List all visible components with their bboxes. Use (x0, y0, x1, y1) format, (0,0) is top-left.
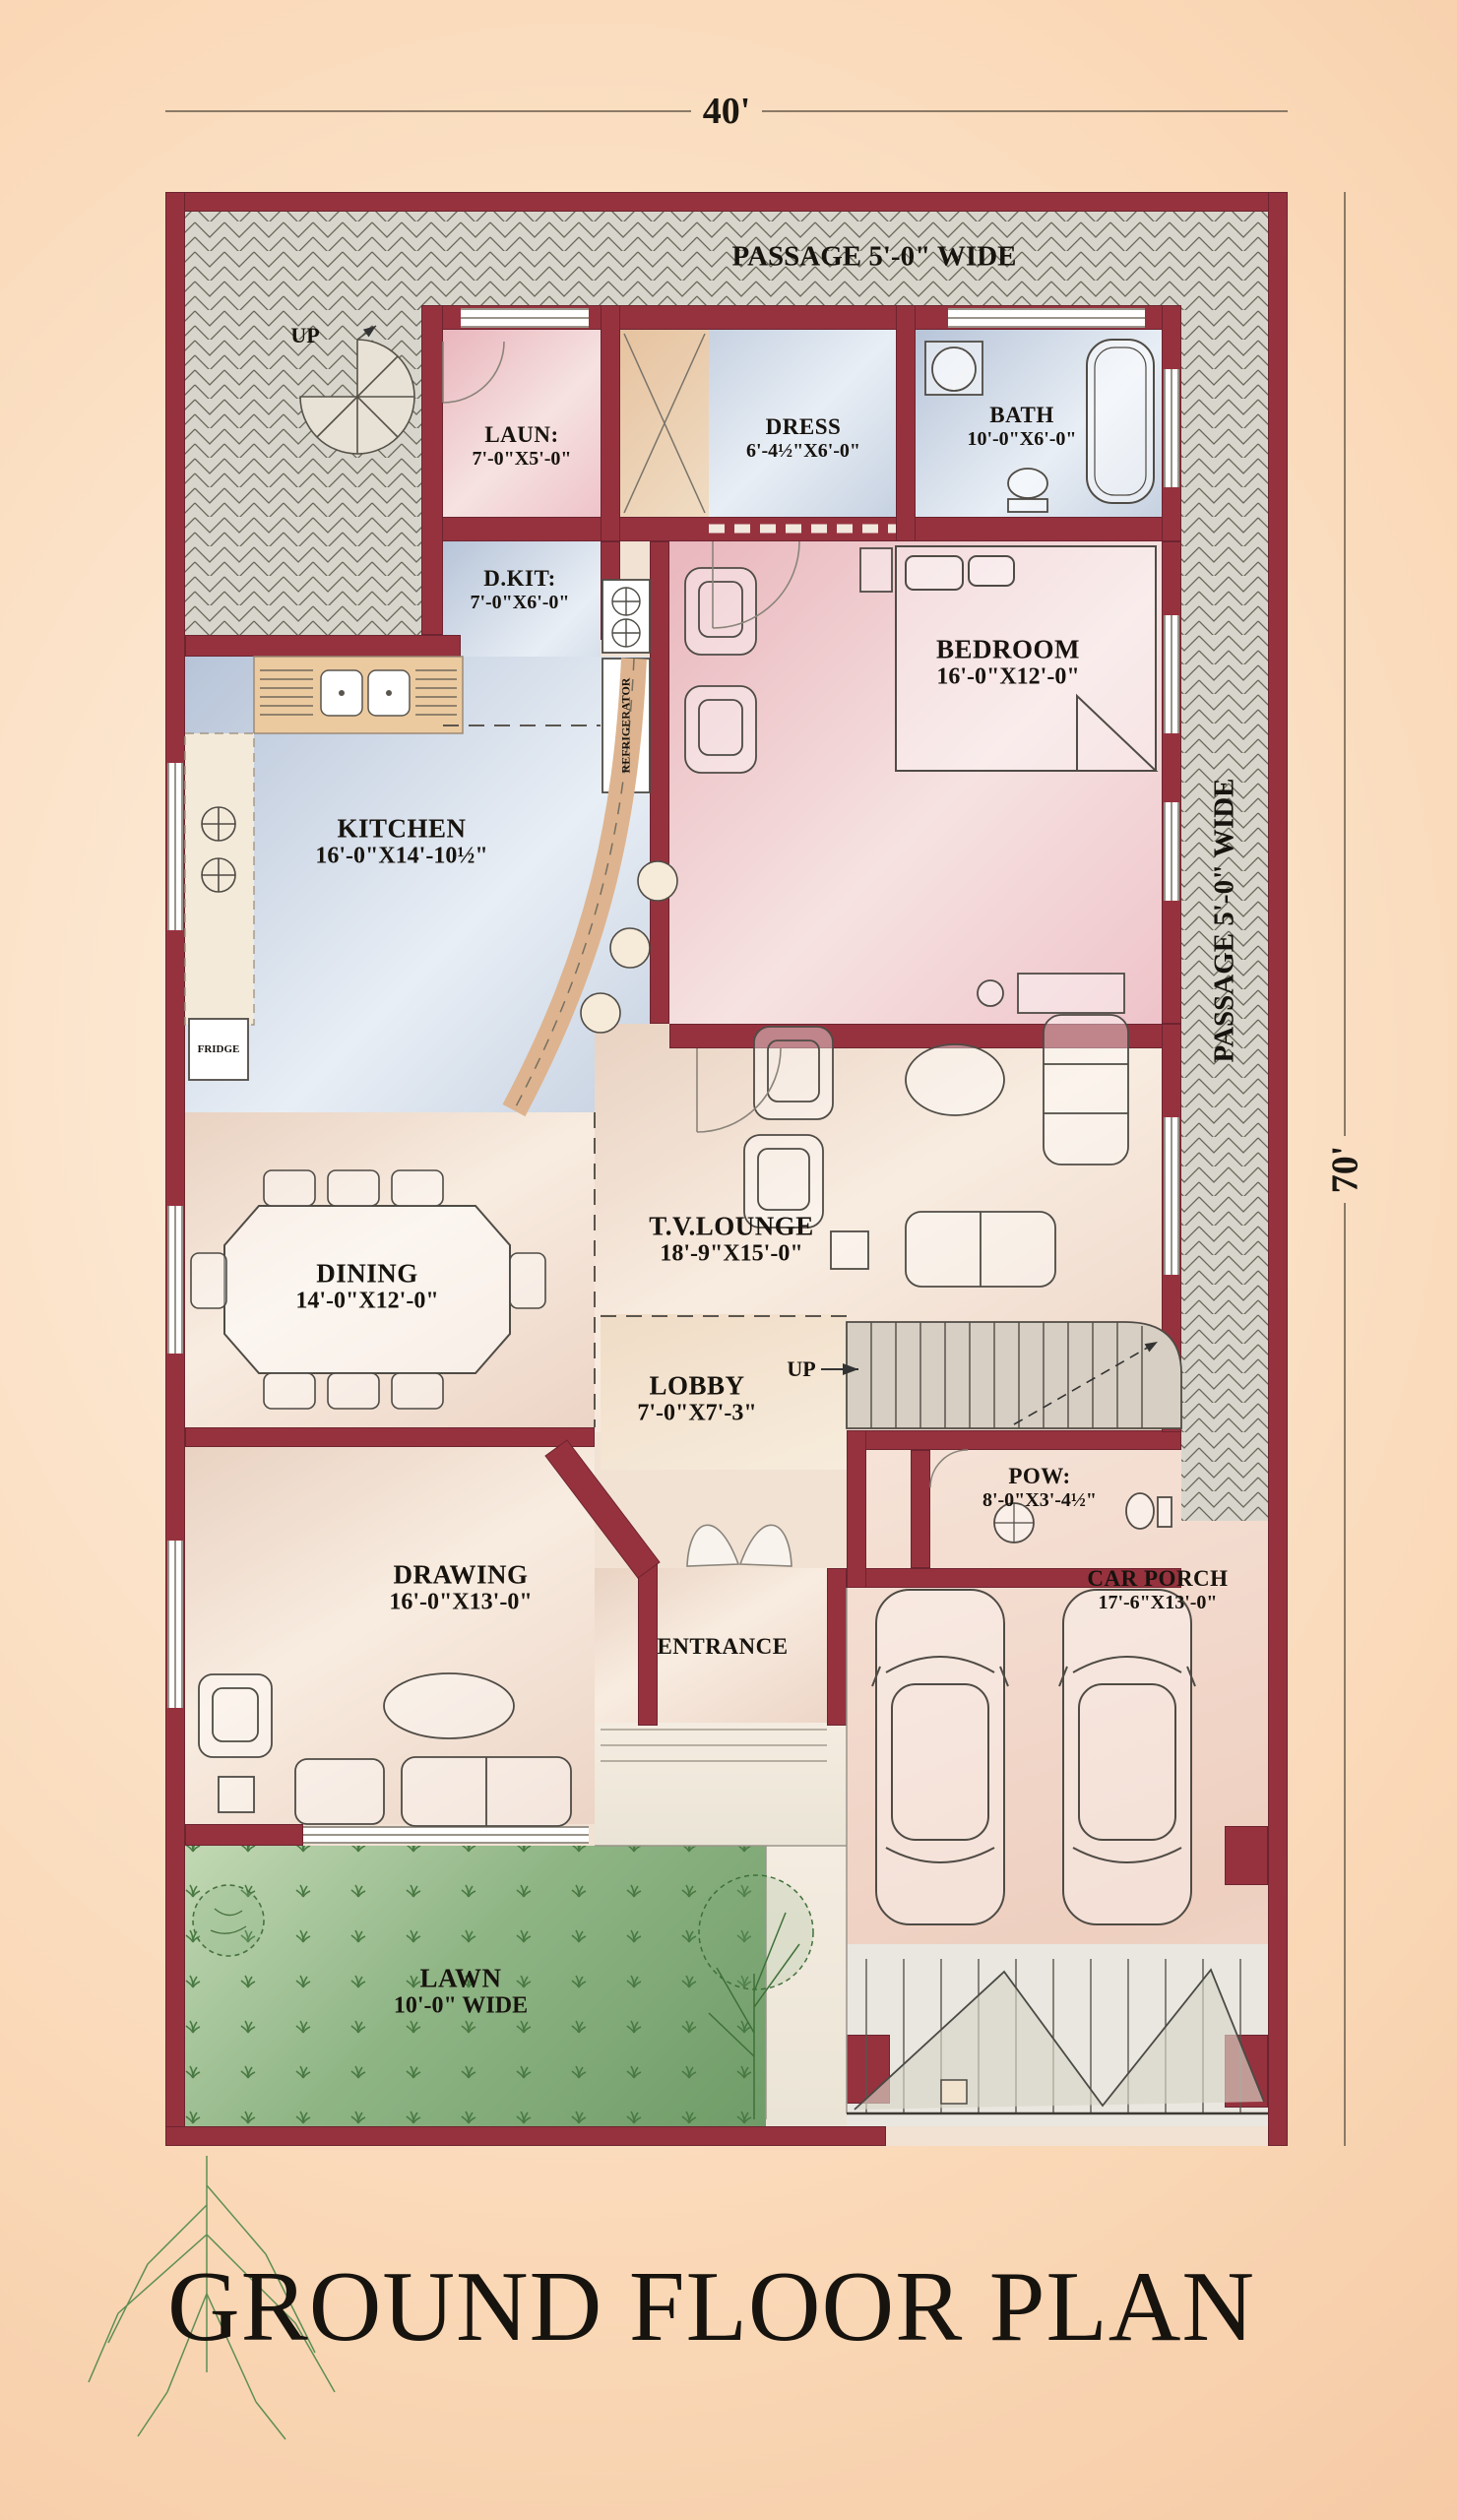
curved-partition (514, 659, 677, 1110)
room-label-dining: DINING 14'-0"X12'-0" (295, 1258, 438, 1314)
dimension-line-segment (762, 110, 1288, 112)
room-label-drawing: DRAWING 16'-0"X13'-0" (389, 1559, 532, 1615)
room-label-dress: DRESS 6'-4½"X6'-0" (746, 414, 860, 462)
fridge-label: FRIDGE (198, 1043, 240, 1055)
stairs-up-label: UP (787, 1356, 815, 1382)
top-dimension-line: 40' (165, 94, 1288, 128)
room-label-lobby: LOBBY 7'-0"X7'-3" (637, 1370, 756, 1426)
kitchen-counter (254, 657, 463, 733)
room-label-car-porch: CAR PORCH 17'-6"X13'-0" (1084, 1566, 1232, 1613)
page-title: GROUND FLOOR PLAN (167, 2249, 1255, 2364)
dimension-line-segment (1344, 1203, 1346, 2147)
room-label-pow: POW: 8'-0"X3'-4½" (982, 1464, 1097, 1511)
kitchen-left-counter (185, 733, 254, 1025)
stairs-icon (821, 1322, 1181, 1428)
car-icon (1059, 1590, 1195, 1924)
spiral-up-label: UP (290, 323, 319, 348)
right-dimension-line: 70' (1325, 192, 1364, 2146)
top-dimension-label: 40' (691, 90, 763, 133)
car-icon (872, 1590, 1008, 1924)
room-label-tv-lounge: T.V.LOUNGE 18'-9"X15'-0" (649, 1211, 814, 1267)
plan-line-art (165, 192, 1288, 2146)
room-label-lawn: LAWN 10'-0" WIDE (394, 1963, 528, 2019)
floor-plan-page: 40' 70' (0, 0, 1457, 2520)
room-label-laun: LAUN: 7'-0"X5'-0" (472, 422, 571, 470)
room-label-entrance: ENTRANCE (657, 1634, 788, 1660)
bath-sink-icon (925, 342, 982, 395)
refrigerator-label: REFRIGERATOR (619, 678, 634, 774)
entrance-steps (601, 1730, 827, 1761)
tree-icon (193, 1885, 264, 1956)
passage-right-label: PASSAGE 5'-0" WIDE (1209, 779, 1241, 1063)
bathtub-icon (1087, 340, 1154, 503)
diagonal-wall (545, 1440, 660, 1578)
dimension-line-segment (165, 110, 691, 112)
drawing-furniture (199, 1673, 571, 1826)
dimension-line-segment (1344, 192, 1346, 1136)
closet-lines (624, 334, 705, 513)
entrance-double-door (687, 1525, 792, 1566)
dresser-icon (978, 974, 1124, 1013)
main-gate (847, 1959, 1268, 2113)
floor-plan: PASSAGE 5'-0" WIDE PASSAGE 5'-0" WIDE UP… (165, 192, 1288, 2146)
room-label-bedroom: BEDROOM 16'-0"X12'-0" (936, 634, 1080, 690)
room-label-dkit: D.KIT: 7'-0"X6'-0" (470, 566, 569, 613)
room-label-kitchen: KITCHEN 16'-0"X14'-10½" (315, 813, 487, 869)
bath-toilet-icon (1008, 469, 1047, 512)
passage-top-label: PASSAGE 5'-0" WIDE (732, 241, 1017, 274)
right-dimension-label: 70' (1311, 1145, 1378, 1193)
room-label-bath: BATH 10'-0"X6'-0" (967, 403, 1076, 450)
